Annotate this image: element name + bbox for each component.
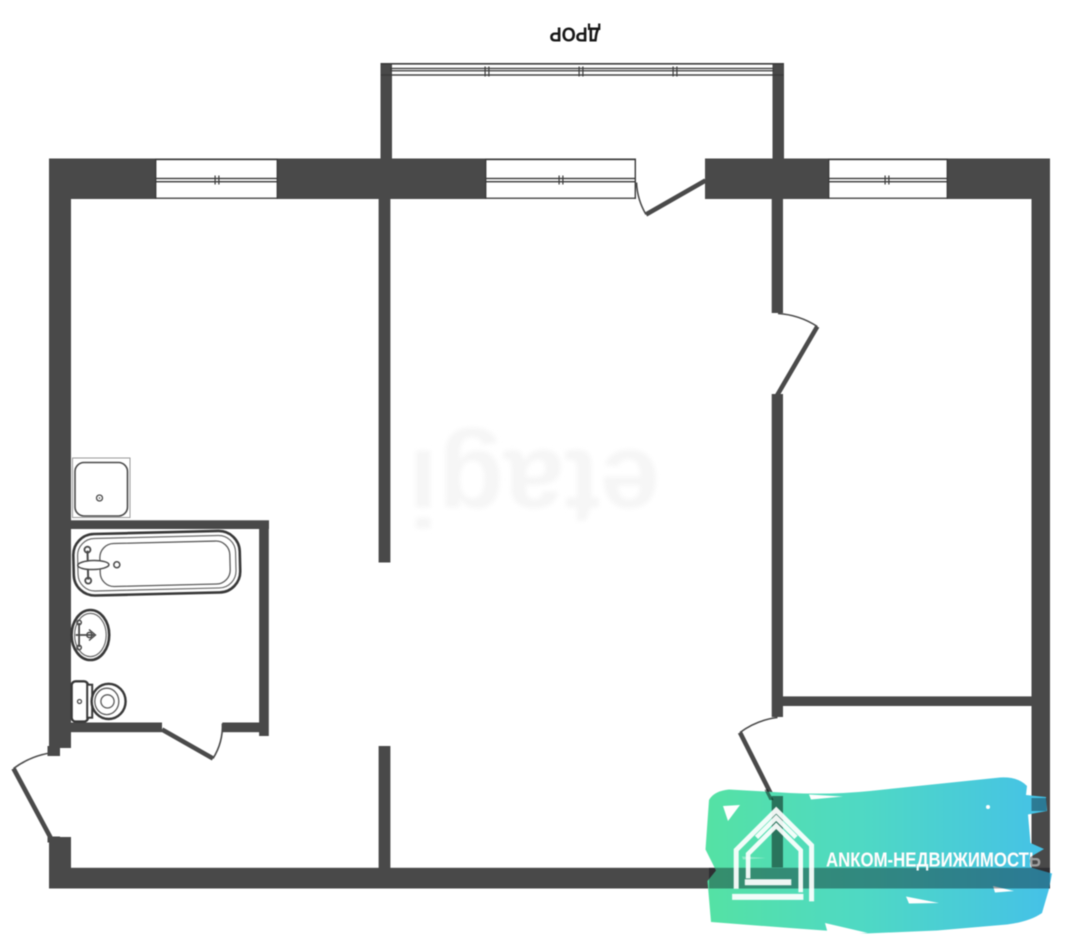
- svg-text:etagi: etagi: [408, 428, 660, 549]
- svg-text:АNКОМ-НЕДВИЖИМОСТЬ: АNКОМ-НЕДВИЖИМОСТЬ: [826, 850, 1041, 872]
- svg-text:ДРОР: ДРОР: [550, 23, 601, 45]
